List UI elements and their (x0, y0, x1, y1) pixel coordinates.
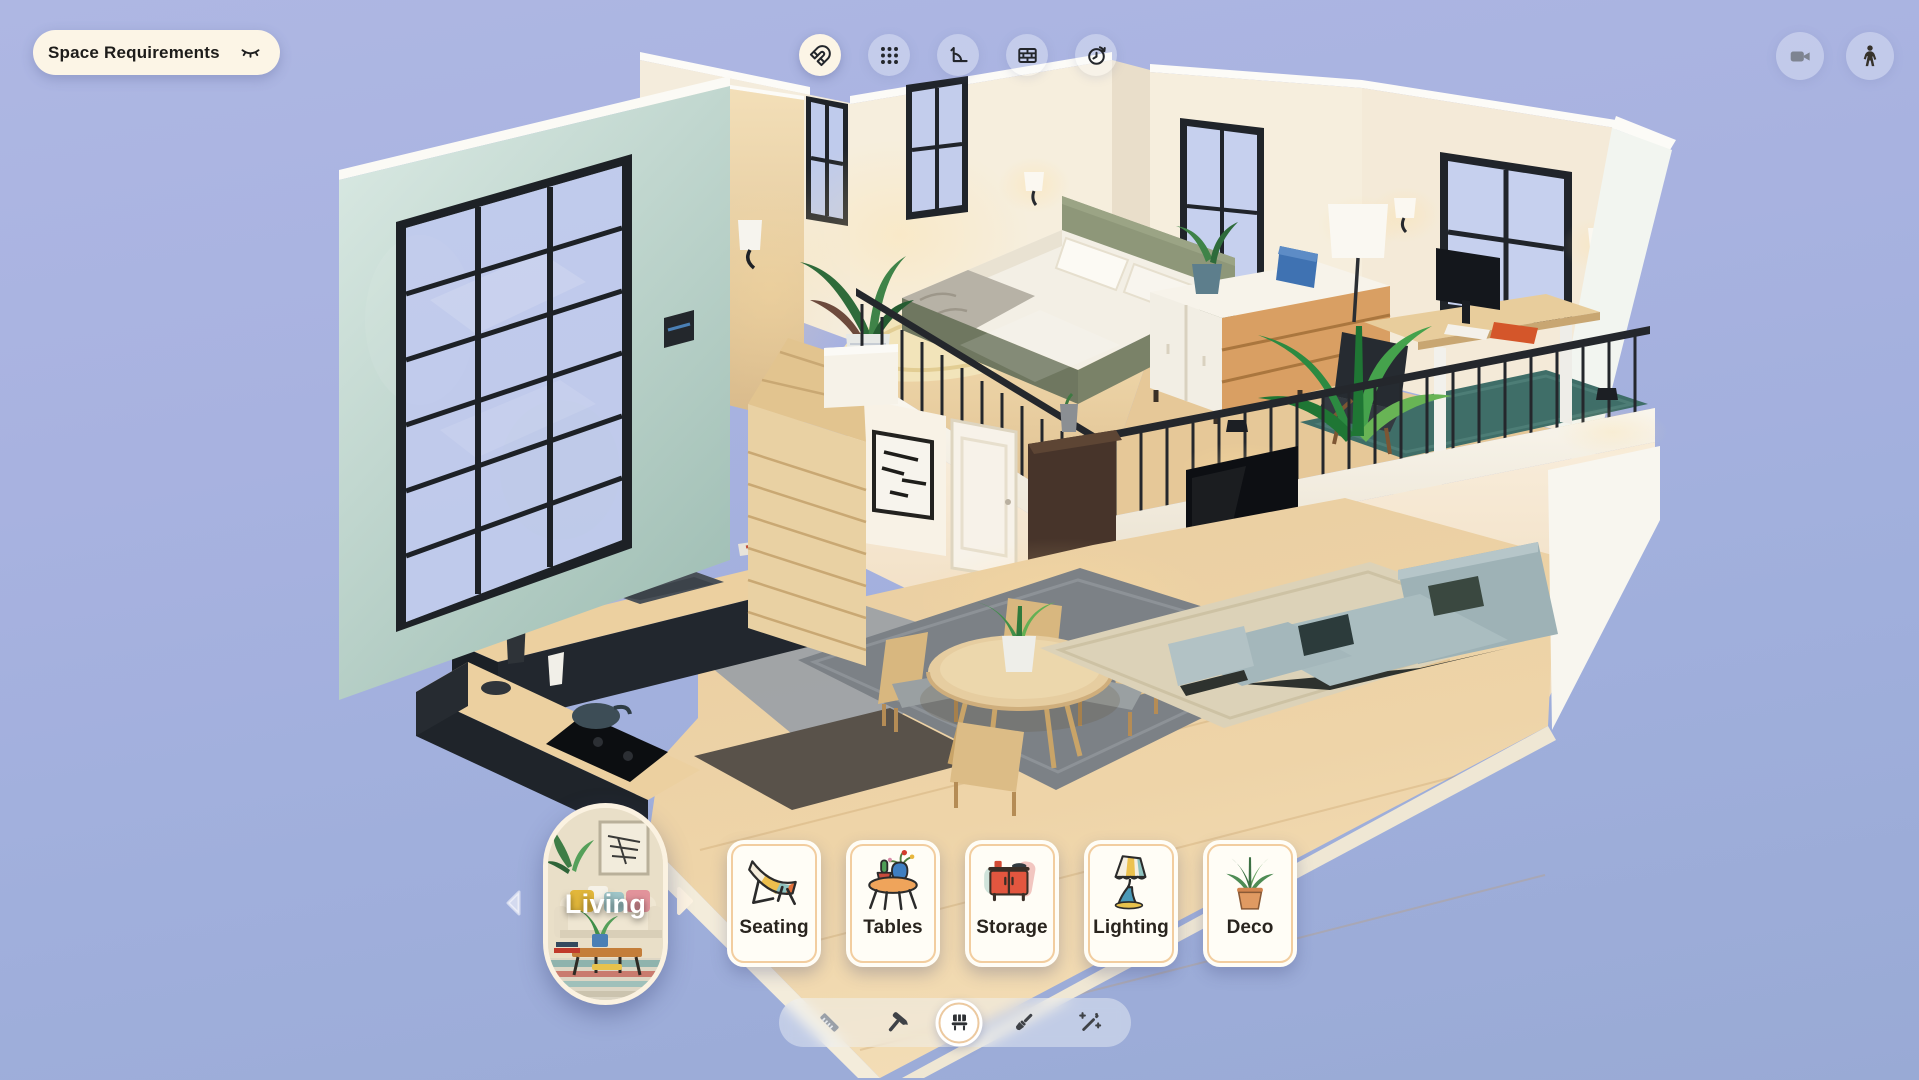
bench-icon (946, 1010, 972, 1036)
category-label: Deco (1227, 917, 1274, 939)
camera-view-button[interactable] (1776, 32, 1824, 80)
hammer-icon (882, 1009, 910, 1037)
category-card-tables[interactable]: Tables (846, 840, 940, 967)
history-button[interactable] (1075, 34, 1117, 76)
carousel-next-button[interactable] (676, 886, 694, 919)
category-label: Seating (739, 917, 808, 939)
auto-style-button[interactable] (1075, 1008, 1105, 1038)
snap-tool-button[interactable] (799, 34, 841, 76)
chevron-right-icon (676, 886, 694, 916)
grid-dots-icon (878, 44, 901, 67)
category-label: Tables (863, 917, 922, 939)
mode-bar (779, 998, 1131, 1047)
category-cards: Seating Tables Storage (727, 840, 1297, 967)
ruler-icon (816, 1009, 843, 1036)
angle-tool-button[interactable] (937, 34, 979, 76)
potted-plant-icon (1217, 848, 1283, 914)
lounge-chair-icon (741, 848, 807, 914)
chevron-left-icon (505, 890, 521, 916)
space-requirements-label: Space Requirements (48, 43, 220, 63)
space-requirements-button[interactable]: Space Requirements (33, 30, 280, 75)
cabinet-icon (979, 848, 1045, 914)
paint-brush-icon (1009, 1009, 1037, 1037)
furnish-mode-button[interactable] (936, 999, 983, 1046)
walk-mode-button[interactable] (1846, 32, 1894, 80)
category-card-deco[interactable]: Deco (1203, 840, 1297, 967)
measure-mode-button[interactable] (814, 1008, 844, 1038)
brick-wall-icon (1016, 44, 1039, 67)
magic-wand-icon (1076, 1009, 1104, 1037)
room-label: Living (548, 808, 663, 1000)
table-lamp-icon (1098, 848, 1164, 914)
category-label: Lighting (1093, 917, 1169, 939)
wall-tool-button[interactable] (1006, 34, 1048, 76)
person-icon (1857, 43, 1883, 69)
category-label: Storage (976, 917, 1047, 939)
layout-grid-button[interactable] (868, 34, 910, 76)
magnet-icon (809, 44, 832, 67)
carousel-prev-button[interactable] (505, 890, 521, 919)
corner-angle-icon (947, 44, 970, 67)
video-camera-icon (1788, 44, 1813, 69)
category-card-storage[interactable]: Storage (965, 840, 1059, 967)
build-mode-button[interactable] (881, 1008, 911, 1038)
room-thumbnail-living[interactable]: Living (543, 803, 668, 1005)
paint-mode-button[interactable] (1008, 1008, 1038, 1038)
clock-history-icon (1085, 44, 1108, 67)
category-card-seating[interactable]: Seating (727, 840, 821, 967)
category-card-lighting[interactable]: Lighting (1084, 840, 1178, 967)
round-table-icon (860, 848, 926, 914)
eye-closed-icon (237, 41, 264, 65)
